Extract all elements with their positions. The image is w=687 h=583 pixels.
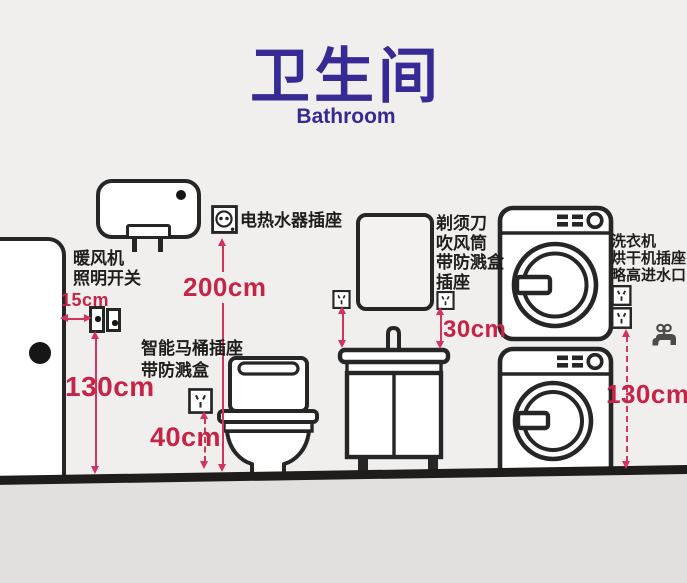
height-130cm-right: 130cm (606, 379, 687, 410)
vanity-socket-label: 剃须刀 吹风筒 带防溅盒 插座 (436, 214, 504, 292)
height-200cm: 200cm (183, 272, 266, 303)
mirror (356, 213, 434, 311)
wall-heater-leg (158, 238, 163, 252)
heater-switch-label-line2: 照明开关 (73, 269, 141, 289)
heater-switch-label-line1: 暖风机 (73, 249, 141, 269)
door-handle (29, 342, 51, 364)
laundry-socket-bottom-icon (611, 307, 632, 329)
measure-line-30cm-left (342, 313, 344, 341)
arrow-right-icon (84, 314, 92, 322)
arrow-down-icon (338, 340, 346, 348)
height-30cm: 30cm (443, 316, 506, 344)
laundry-socket-label-line3: 略高进水口 (611, 267, 686, 284)
wall-switch-icon (106, 308, 121, 332)
vanity-socket-label-line4: 插座 (436, 273, 504, 293)
laundry-socket-label: 洗衣机 烘干机插座 略高进水口 (611, 233, 686, 284)
switch-dot (95, 316, 101, 322)
measure-line-30cm-right (440, 314, 442, 342)
toilet-socket-label-line2: 带防溅盒 (141, 360, 243, 382)
page-subtitle: Bathroom (166, 105, 526, 129)
vanity-cabinet (336, 324, 452, 476)
arrow-down-icon (218, 464, 226, 472)
toilet-socket-label-line1: 智能马桶插座 (141, 338, 243, 360)
vanity-socket-label-line3: 带防溅盒 (436, 253, 504, 273)
page-title: 卫生间 (166, 28, 526, 115)
washing-machine (496, 346, 615, 483)
height-40cm: 40cm (150, 422, 221, 453)
arrow-down-icon (200, 461, 208, 469)
laundry-socket-top-icon (611, 285, 632, 306)
arrow-down-icon (622, 461, 630, 469)
heater-switch-label: 暖风机 照明开关 (73, 249, 141, 289)
toilet-socket-label: 智能马桶插座 带防溅盒 (141, 338, 243, 382)
floor (0, 468, 687, 583)
vanity-socket-label-line1: 剃须刀 (436, 214, 504, 234)
bathroom-diagram: 卫生间 Bathroom 暖风机 照明开关 15cm 130cm 电热水器插座 … (0, 0, 687, 583)
switch-dot (112, 320, 118, 326)
water-heater-socket-label: 电热水器插座 (240, 211, 342, 231)
measure-line-130cm-left (95, 338, 97, 468)
faucet-icon (648, 323, 680, 352)
water-heater-socket-icon (211, 205, 238, 234)
offset-15cm: 15cm (61, 290, 109, 311)
vanity-socket-label-line2: 吹风筒 (436, 234, 504, 254)
dryer (496, 205, 615, 342)
wall-heater-indicator (176, 190, 186, 200)
laundry-socket-label-line2: 烘干机插座 (611, 250, 686, 267)
laundry-socket-label-line1: 洗衣机 (611, 233, 686, 250)
arrow-down-icon (91, 466, 99, 474)
arrow-left-icon (60, 314, 68, 322)
wall-heater-bracket (126, 224, 171, 239)
